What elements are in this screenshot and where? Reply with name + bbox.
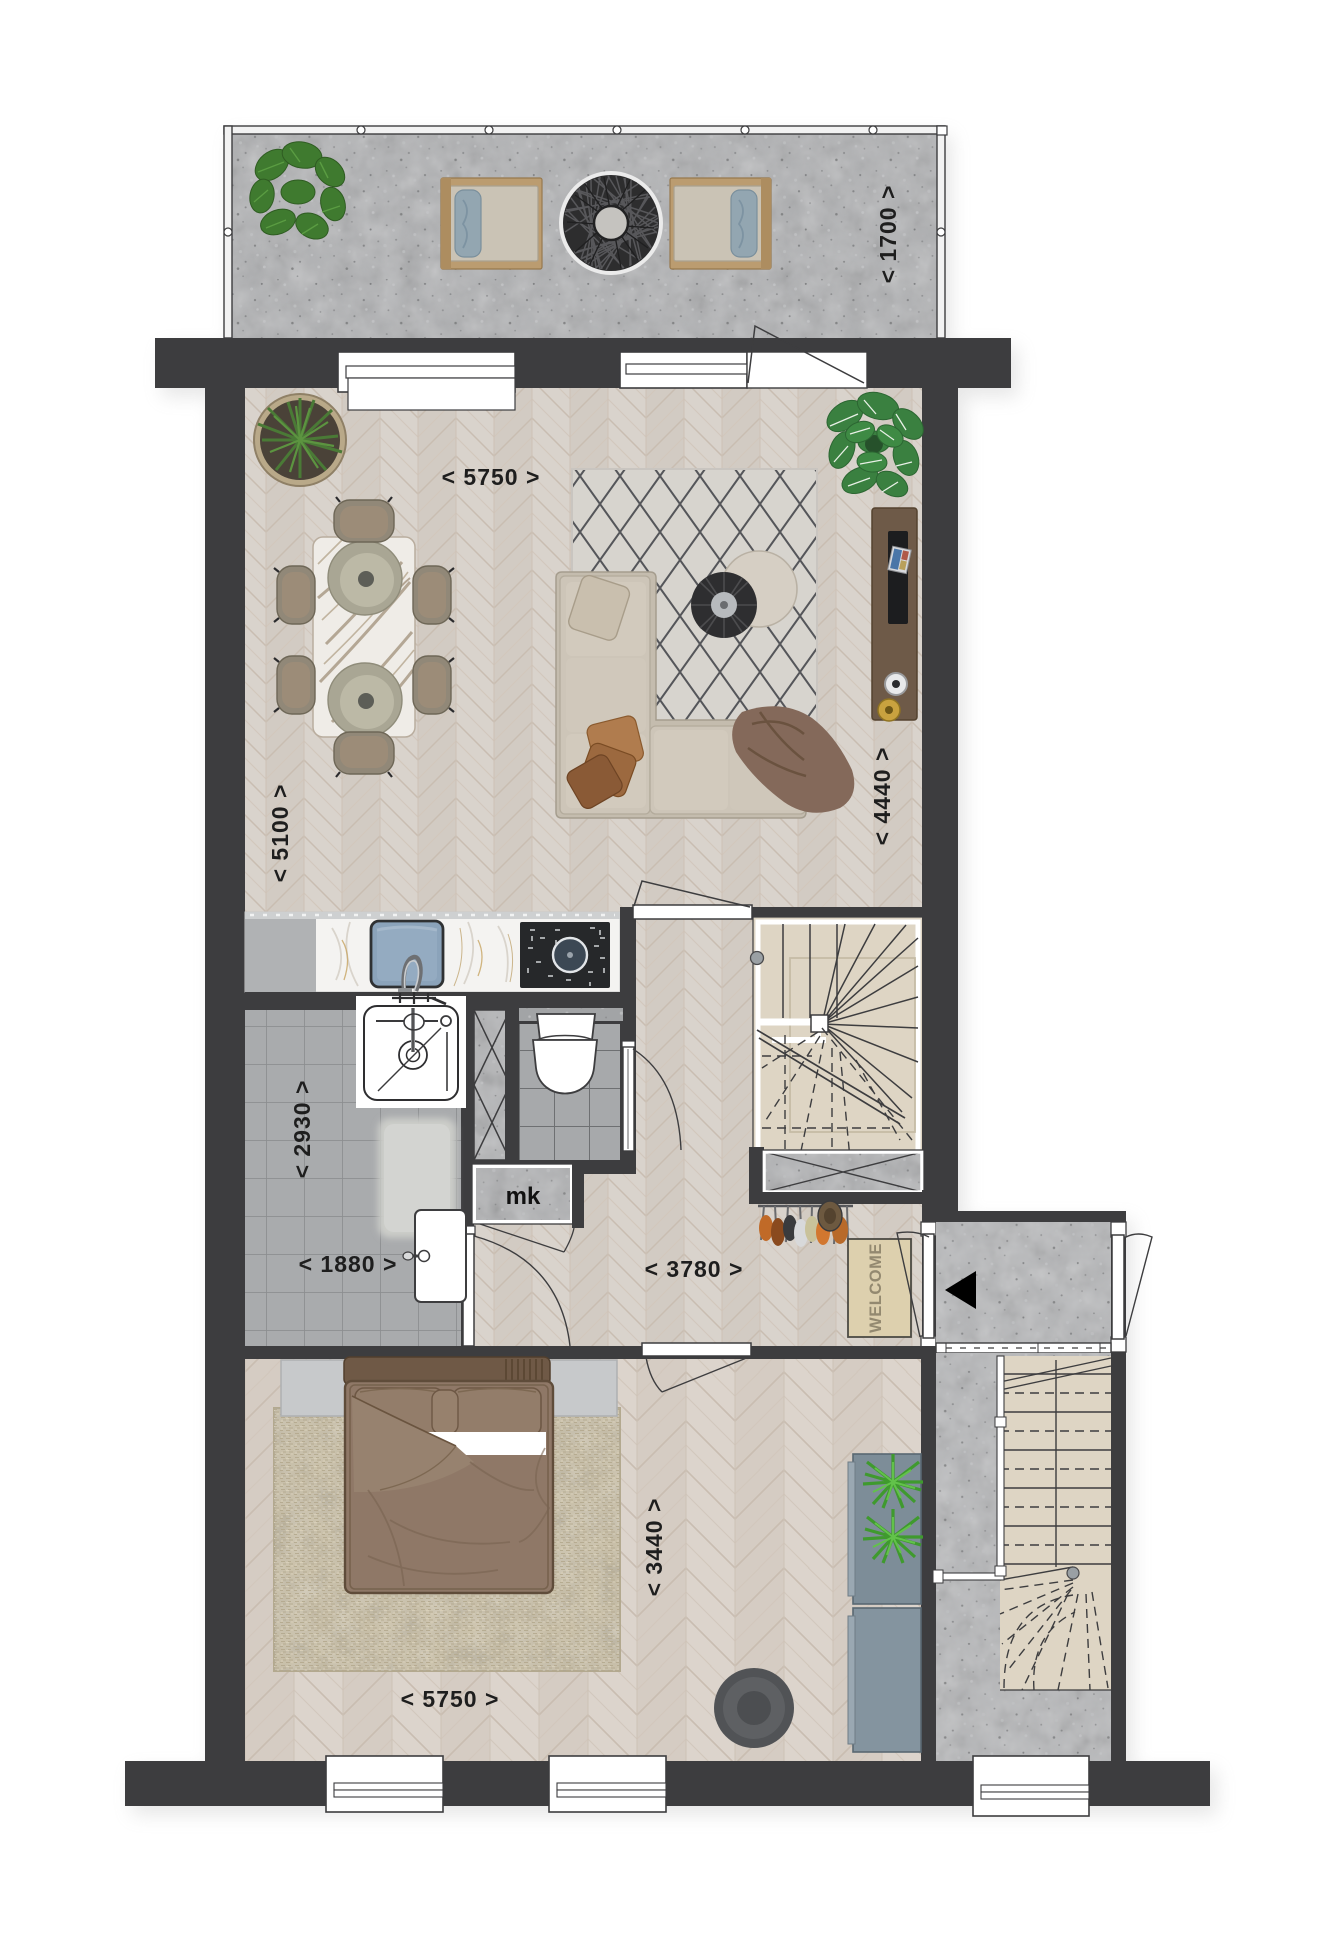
svg-text:< 2930 >: < 2930 >	[289, 1080, 315, 1179]
svg-text:< 5750 >: < 5750 >	[442, 464, 541, 490]
svg-text:< 3440 >: < 3440 >	[641, 1498, 667, 1597]
svg-text:< 5100 >: < 5100 >	[267, 784, 293, 883]
svg-text:< 3780 >: < 3780 >	[645, 1256, 744, 1282]
svg-text:< 1700 >: < 1700 >	[875, 185, 901, 284]
svg-text:mk: mk	[506, 1183, 541, 1210]
svg-text:< 5750 >: < 5750 >	[401, 1686, 500, 1712]
svg-text:< 4440 >: < 4440 >	[869, 747, 895, 846]
svg-text:WELCOME: WELCOME	[867, 1243, 885, 1333]
svg-text:< 1880 >: < 1880 >	[299, 1251, 398, 1277]
